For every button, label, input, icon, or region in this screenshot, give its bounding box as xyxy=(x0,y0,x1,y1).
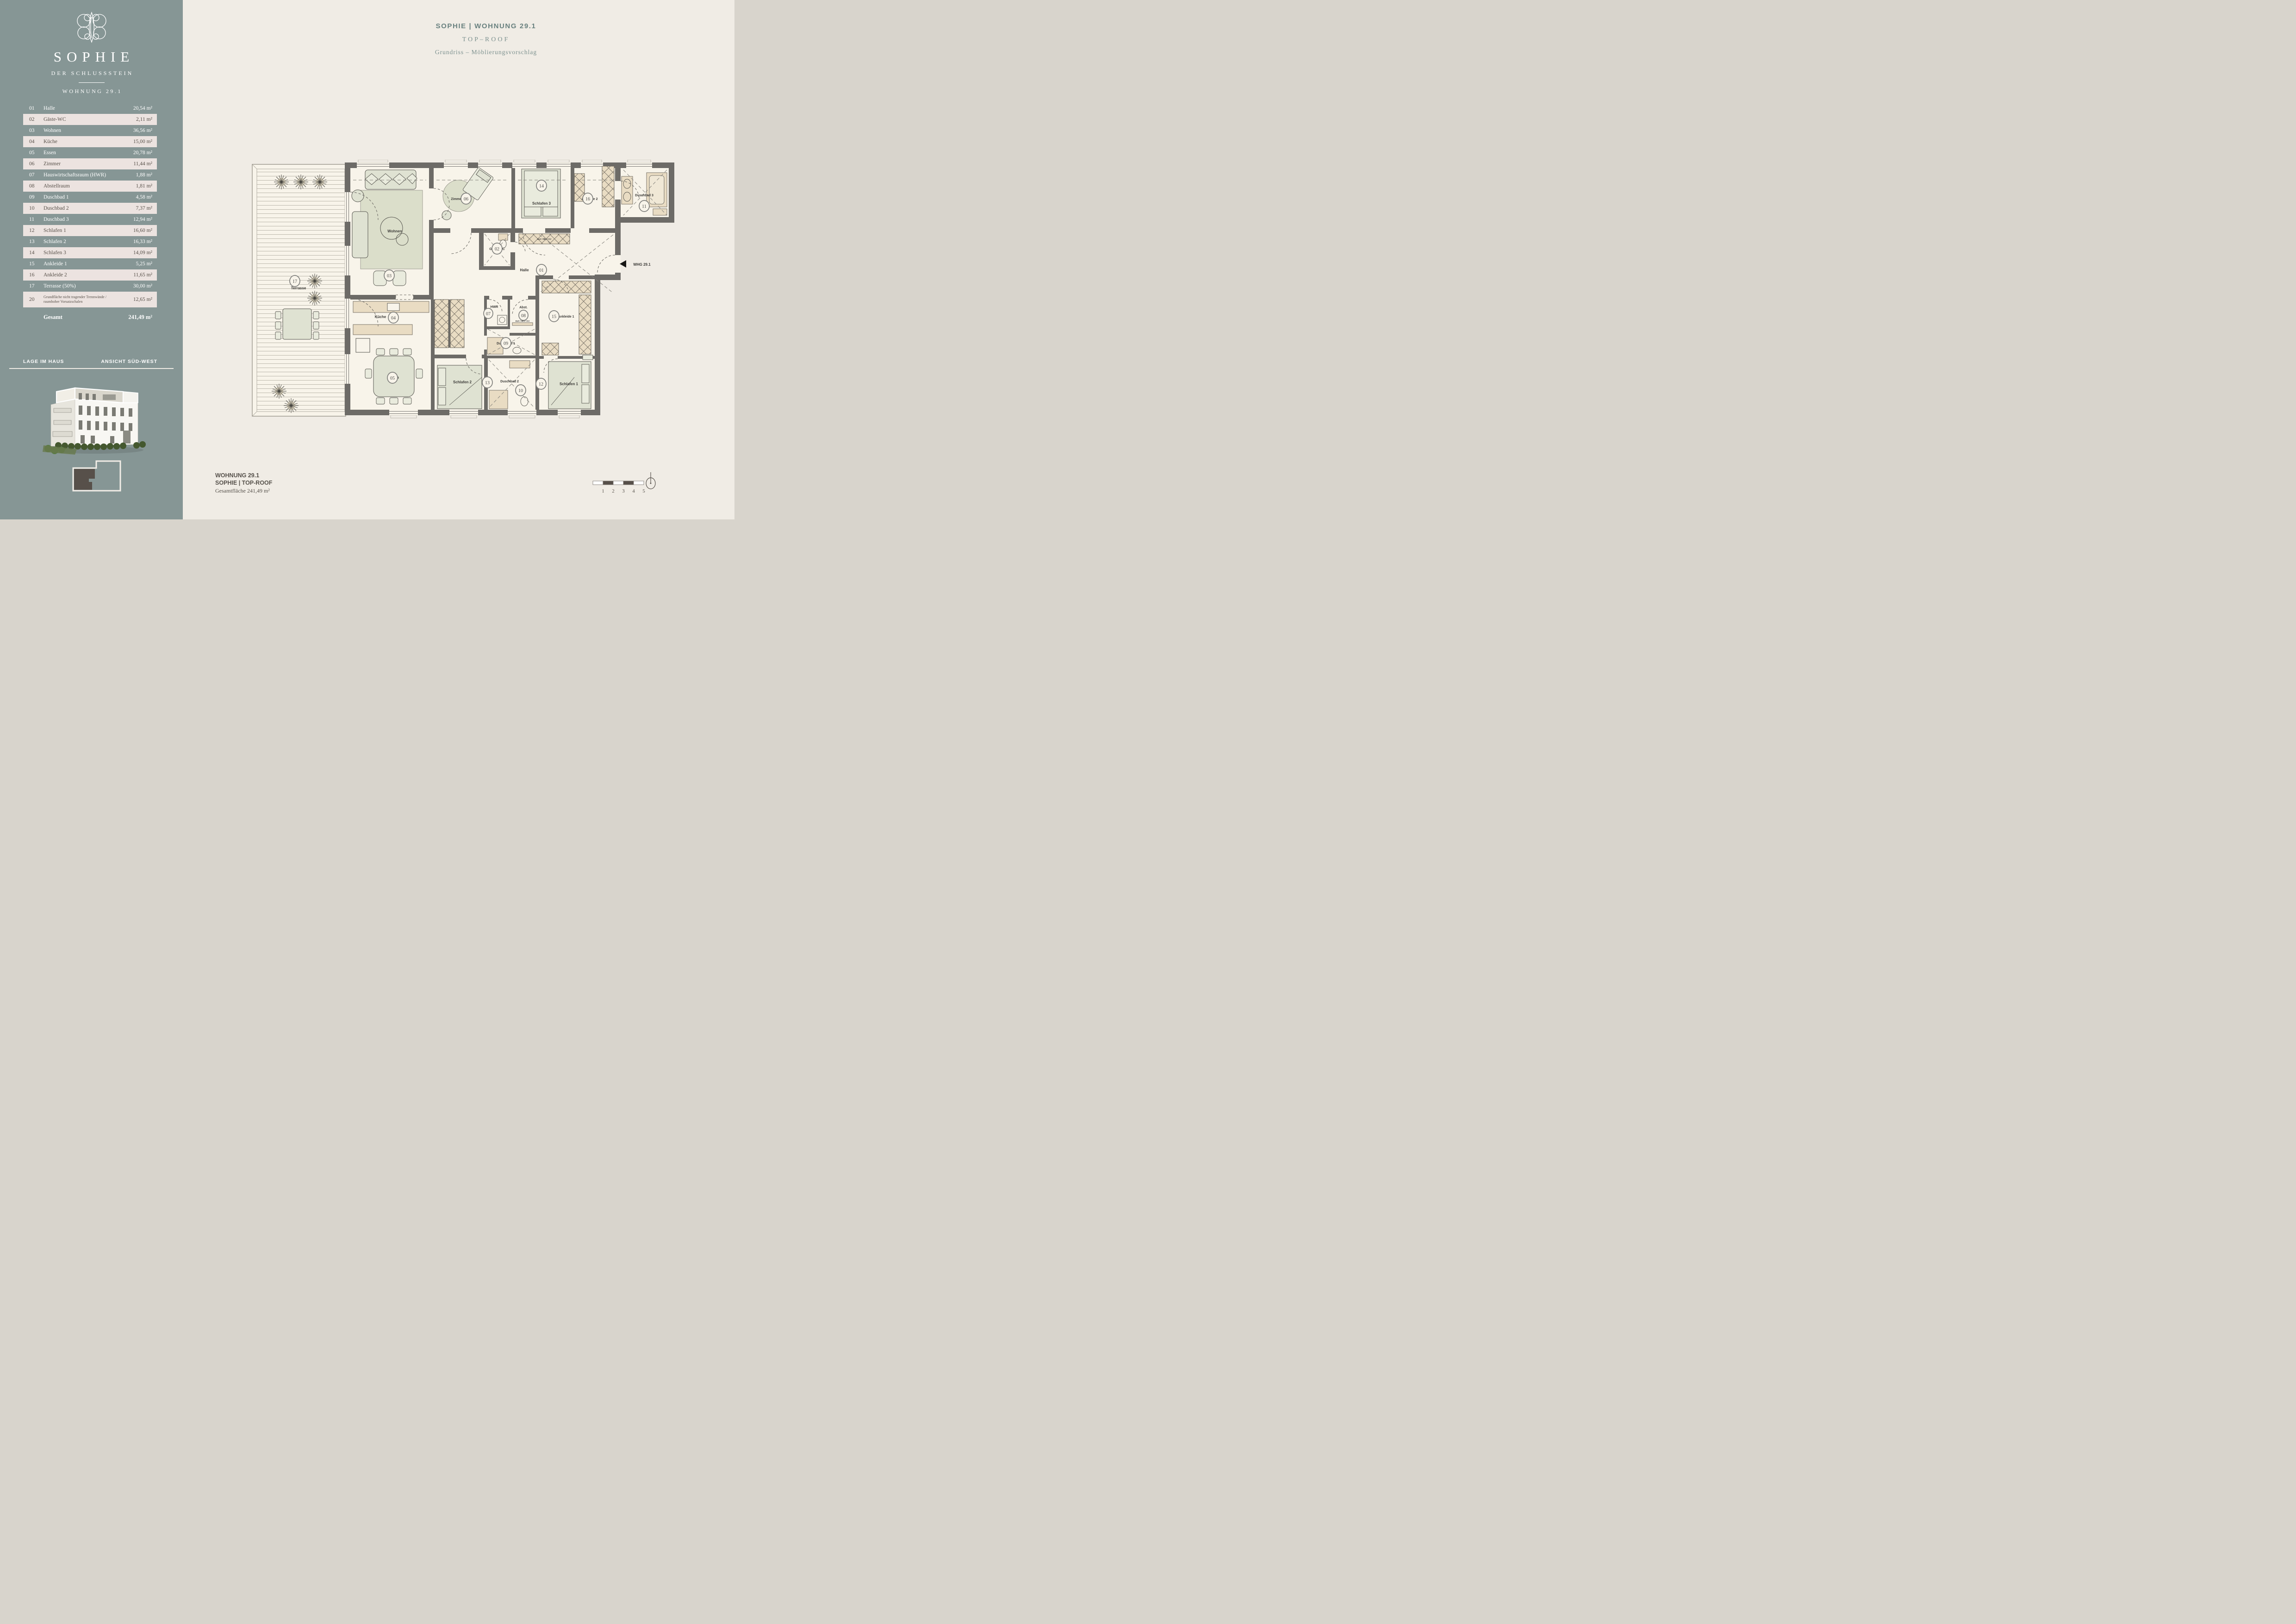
terrace-table xyxy=(283,309,311,339)
room-table: 01Halle20,54 m² 02Gäste-WC2,11 m² 03Wohn… xyxy=(23,103,157,321)
caption-line3: Gesamtfläche 241,49 m² xyxy=(215,487,272,494)
main-area: SOPHIE | WOHNUNG 29.1 TOP–ROOF Grundriss… xyxy=(183,0,734,519)
table-row: 17Terrasse (50%)30,00 m² xyxy=(23,281,157,292)
svg-text:1: 1 xyxy=(602,488,604,494)
table-row: 08Abstellraum1,81 m² xyxy=(23,181,157,192)
svg-text:13: 13 xyxy=(485,381,490,386)
page-subtitle: TOP–ROOF xyxy=(303,36,669,44)
table-row: 06Zimmer11,44 m² xyxy=(23,158,157,169)
keyplan-unit-fill xyxy=(74,469,95,490)
svg-text:3: 3 xyxy=(622,488,625,494)
table-row: 02Gäste-WC2,11 m² xyxy=(23,114,157,125)
keyplan xyxy=(64,457,122,493)
table-row: 04Küche15,00 m² xyxy=(23,136,157,147)
svg-text:Halle: Halle xyxy=(520,268,529,272)
svg-text:Terrasse: Terrasse xyxy=(291,286,306,290)
entrance-label: WHG 29.1 xyxy=(633,262,651,267)
brand-unit: WOHNUNG 29.1 xyxy=(0,88,183,95)
table-row: 07Hauswirtschaftsraum (HWR)1,88 m² xyxy=(23,169,157,181)
table-row: 15Ankleide 15,25 m² xyxy=(23,258,157,269)
svg-text:08: 08 xyxy=(521,313,526,319)
caption-line2: SOPHIE | TOP-ROOF xyxy=(215,480,272,487)
svg-text:07: 07 xyxy=(486,312,491,317)
svg-text:Abst.: Abst. xyxy=(519,306,528,309)
svg-text:Schlafen 1: Schlafen 1 xyxy=(560,382,579,386)
cabinet-label: EUV / HKV / KV xyxy=(537,238,551,240)
sidebar: SOPHIE DER SCHLUSSSTEIN WOHNUNG 29.1 01H… xyxy=(0,0,183,519)
table-row: 09Duschbad 14,58 m² xyxy=(23,192,157,203)
svg-text:11: 11 xyxy=(642,204,647,209)
svg-text:02: 02 xyxy=(495,247,499,252)
location-right-label: ANSICHT SÜD-WEST xyxy=(101,359,157,364)
table-row: 12Schlafen 116,60 m² xyxy=(23,225,157,236)
building-render xyxy=(32,376,151,456)
table-row: 03Wohnen36,56 m² xyxy=(23,125,157,136)
svg-text:15: 15 xyxy=(552,314,556,319)
caption-line1: WOHNUNG 29.1 xyxy=(215,472,272,480)
svg-text:2: 2 xyxy=(612,488,615,494)
table-row: 11Duschbad 312,94 m² xyxy=(23,214,157,225)
svg-text:17: 17 xyxy=(292,279,297,284)
location-header: LAGE IM HAUS ANSICHT SÜD-WEST xyxy=(23,359,157,364)
table-row: 14Schlafen 314,09 m² xyxy=(23,247,157,258)
table-row: 01Halle20,54 m² xyxy=(23,103,157,114)
page-title: SOPHIE | WOHNUNG 29.1 xyxy=(303,22,669,30)
svg-text:Duschbad 2: Duschbad 2 xyxy=(500,380,519,383)
svg-text:Ankleide 1: Ankleide 1 xyxy=(558,315,574,319)
ornament-flourish-icon xyxy=(70,11,113,44)
table-row: 13Schlafen 216,33 m² xyxy=(23,236,157,247)
table-row: 20Grundfläche nicht tragender Trennwände… xyxy=(23,292,157,307)
north-compass-icon xyxy=(644,471,658,492)
floor-plan: 17Terrasse Wohnen03 Zimmer06 14Schlafen … xyxy=(250,160,675,421)
svg-text:14: 14 xyxy=(539,184,544,189)
total-area: 241,49 m² xyxy=(128,314,152,321)
location-left-label: LAGE IM HAUS xyxy=(23,359,64,364)
svg-text:06: 06 xyxy=(464,197,468,202)
page-subtitle2: Grundriss – Möblierungsvorschlag xyxy=(303,49,669,56)
table-total-row: Gesamt 241,49 m² xyxy=(23,314,157,321)
brand-subtitle: DER SCHLUSSSTEIN xyxy=(0,70,183,77)
svg-text:12: 12 xyxy=(539,382,543,387)
location-divider xyxy=(9,368,174,369)
logo-divider xyxy=(79,82,105,83)
total-label: Gesamt xyxy=(44,314,128,321)
svg-text:Schlafen 2: Schlafen 2 xyxy=(453,380,472,384)
terrace xyxy=(252,164,346,416)
brand-name: SOPHIE xyxy=(0,49,183,65)
entrance-marker: WHG 29.1 xyxy=(620,260,651,268)
table-row: 10Duschbad 27,37 m² xyxy=(23,203,157,214)
svg-text:09: 09 xyxy=(504,341,508,346)
svg-text:Wohnen: Wohnen xyxy=(387,229,402,233)
table-row: 05Essen20,78 m² xyxy=(23,147,157,158)
svg-text:04: 04 xyxy=(391,316,396,321)
svg-text:05: 05 xyxy=(390,376,395,381)
plan-caption: WOHNUNG 29.1 SOPHIE | TOP-ROOF Gesamtflä… xyxy=(215,472,272,494)
table-row: 16Ankleide 211,65 m² xyxy=(23,269,157,281)
svg-text:10: 10 xyxy=(518,388,523,394)
svg-text:Küche: Küche xyxy=(375,315,386,319)
brochure-page: SOPHIE DER SCHLUSSSTEIN WOHNUNG 29.1 01H… xyxy=(0,0,734,519)
entrance-arrow-icon xyxy=(620,260,626,268)
page-header: SOPHIE | WOHNUNG 29.1 TOP–ROOF Grundriss… xyxy=(303,22,669,56)
brand-logo: SOPHIE DER SCHLUSSSTEIN WOHNUNG 29.1 xyxy=(0,11,183,95)
svg-text:16: 16 xyxy=(585,197,590,202)
svg-text:HWR: HWR xyxy=(491,306,498,309)
svg-text:03: 03 xyxy=(387,274,392,279)
svg-text:01: 01 xyxy=(539,268,544,273)
svg-text:Schlafen 3: Schlafen 3 xyxy=(532,201,551,206)
svg-text:4: 4 xyxy=(632,488,635,494)
svg-text:Duschbad 3: Duschbad 3 xyxy=(635,194,653,197)
svg-text:EUV / HKV / KV: EUV / HKV / KV xyxy=(537,238,551,240)
svg-text:EUV / HKV / KV: EUV / HKV / KV xyxy=(516,320,529,322)
